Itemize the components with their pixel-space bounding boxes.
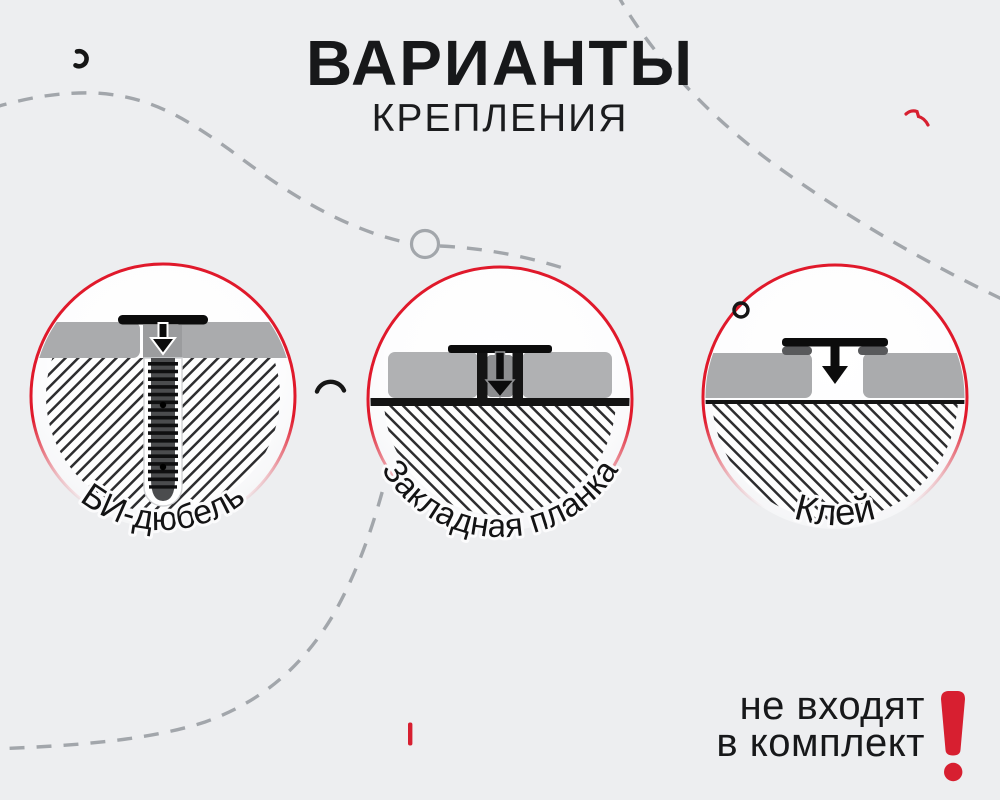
variant-label: Клей xyxy=(791,486,879,533)
strip-wall-right xyxy=(513,353,524,400)
panel-right xyxy=(522,352,612,398)
note-line-2: в комплект xyxy=(716,725,925,762)
dowel-pin-dot xyxy=(160,464,166,470)
page-subtitle: КРЕПЛЕНИЯ xyxy=(0,97,1000,141)
glue-pad-left xyxy=(782,347,812,356)
mounting-strip-diagram xyxy=(365,345,635,406)
strip-wall-left xyxy=(477,353,488,400)
panel-left xyxy=(388,352,478,398)
variant-bi-dowel: БИ-дюбель xyxy=(18,251,308,571)
not-included-note: не входят в комплект xyxy=(716,688,970,784)
variant-glue: Клей xyxy=(690,252,980,572)
base-line xyxy=(702,400,968,404)
arc-mark-icon xyxy=(317,382,344,392)
page-title: ВАРИАНТЫ xyxy=(0,26,1000,100)
glue-pad-right xyxy=(858,347,888,356)
variant-mounting-strip: Закладная планка xyxy=(355,254,645,574)
dowel-pin-dot xyxy=(160,402,166,408)
panel-left xyxy=(18,322,140,358)
note-line-1: не входят xyxy=(716,688,925,725)
infographic-canvas: ВАРИАНТЫ КРЕПЛЕНИЯ xyxy=(0,0,1000,800)
t-profile-cap xyxy=(782,338,888,347)
red-dash-icon xyxy=(408,723,412,746)
base-bar xyxy=(365,398,635,406)
exclamation-mark-icon xyxy=(938,688,970,784)
